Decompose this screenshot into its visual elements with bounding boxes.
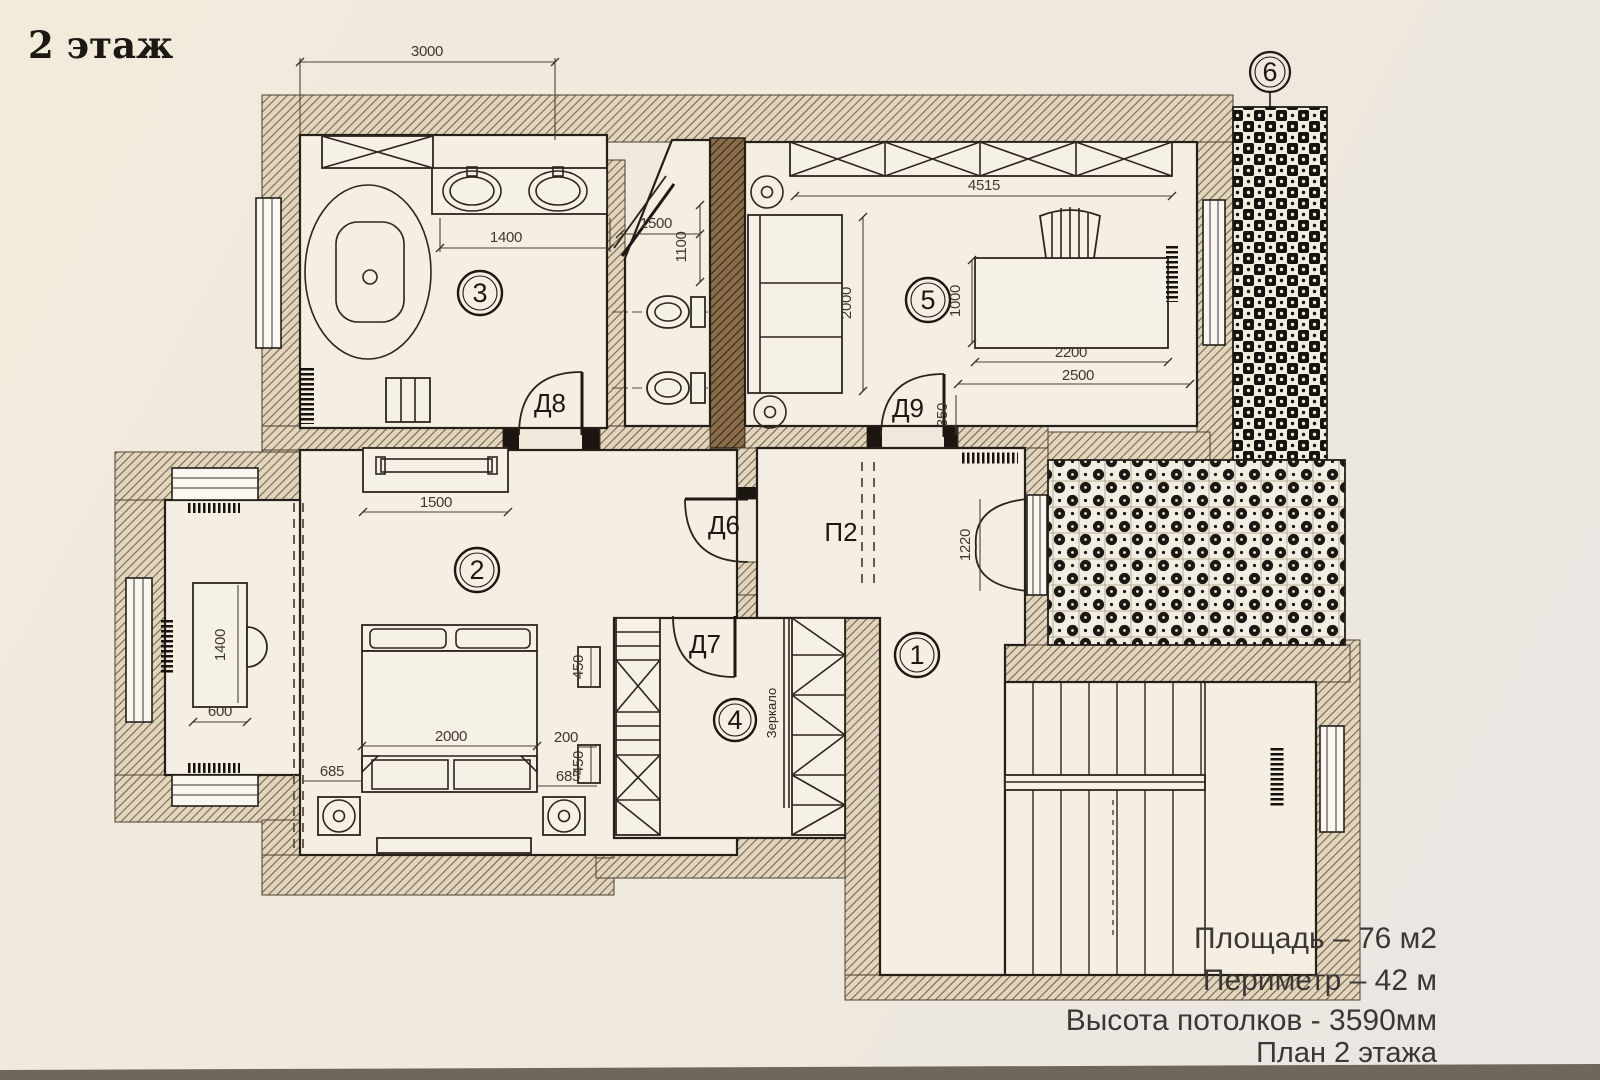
- toilet-top: [647, 296, 689, 328]
- wc-room5-wall: [710, 138, 745, 448]
- window-hall-terrace: [1027, 495, 1047, 595]
- toilet-bottom: [647, 372, 689, 404]
- bed: [362, 651, 537, 792]
- opening-label-p2: П2: [824, 517, 857, 547]
- door-label-d8: Д8: [534, 388, 566, 418]
- window-alcove-top: [172, 468, 258, 500]
- caption-area: Площадь – 76 м2: [1194, 922, 1437, 955]
- caption-ceiling-height: Высота потолков - 3590мм: [1066, 1004, 1437, 1037]
- balcony-tile-floor: [1233, 107, 1327, 460]
- window-bath: [256, 198, 281, 348]
- closet-right-column: [792, 618, 845, 835]
- dim-desk-depth: 1000: [947, 285, 964, 317]
- dim-closet-gap: 200: [554, 729, 578, 746]
- door-label-d7: Д7: [689, 629, 721, 659]
- terrace-mosaic-floor: [1048, 460, 1345, 645]
- window-alcove-bottom: [172, 775, 258, 806]
- window-alcove-left: [126, 578, 152, 722]
- window-stairs: [1320, 726, 1344, 832]
- room-number-label: 1: [909, 640, 924, 670]
- dim-vanity: 1400: [490, 229, 522, 246]
- dim-desk-total: 2500: [1062, 367, 1094, 384]
- dim-alcove-desk-width: 600: [208, 703, 232, 720]
- photographed-floor-plan: 3 5 2 1 4 6 2 этаж: [0, 0, 1600, 1080]
- dim-sofa: 2000: [838, 287, 855, 319]
- page-title: 2 этаж: [28, 23, 173, 67]
- dim-bed-right: 685: [556, 768, 580, 785]
- dim-tv: 1500: [420, 494, 452, 511]
- bed-bench: [377, 838, 531, 853]
- dim-d9-offset: 350: [934, 403, 951, 427]
- room-number-label: 6: [1262, 57, 1277, 87]
- dim-desk-width: 2200: [1055, 344, 1087, 361]
- door-label-d9: Д9: [892, 393, 924, 423]
- mirror-label: Зеркало: [764, 688, 779, 738]
- dim-hall-window: 1220: [957, 529, 974, 561]
- door-label-d6: Д6: [708, 510, 740, 540]
- dim-bed: 2000: [435, 728, 467, 745]
- balcony-door-room5: [1203, 200, 1225, 345]
- wardrobe-row: [790, 142, 1172, 176]
- room-circle-6: 6: [1250, 52, 1290, 108]
- nightstand-left: [318, 797, 360, 835]
- dim-wc-width: 1500: [640, 215, 672, 232]
- dim-closet-top: 450: [570, 655, 587, 679]
- dim-wardrobe: 4515: [968, 177, 1000, 194]
- floor-plan-svg: 3 5 2 1 4 6 2 этаж: [0, 0, 1600, 1080]
- caption-perimeter: Периметр – 42 м: [1203, 964, 1437, 997]
- room-number-label: 2: [469, 555, 484, 585]
- table-edge: [0, 1064, 1600, 1080]
- sofa: [748, 215, 842, 393]
- dim-wc-depth: 1100: [673, 231, 690, 262]
- desk: [975, 258, 1168, 348]
- room-number-label: 3: [472, 278, 487, 308]
- nightstand-right: [543, 797, 585, 835]
- bath-step: [386, 378, 430, 422]
- dim-alcove-desk-length: 1400: [212, 629, 229, 661]
- dim-top-wall: 3000: [411, 43, 443, 60]
- dim-bed-left: 685: [320, 763, 344, 780]
- room-number-label: 5: [920, 285, 935, 315]
- room-number-label: 4: [727, 705, 742, 735]
- caption-plan-name: План 2 этажа: [1256, 1037, 1438, 1069]
